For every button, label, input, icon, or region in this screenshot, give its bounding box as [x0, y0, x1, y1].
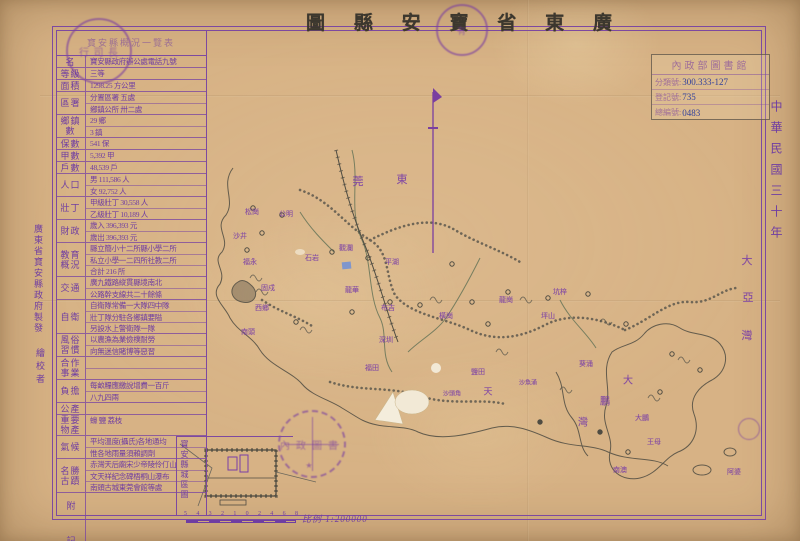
scalebar-numbers: 5432102468	[184, 511, 298, 517]
table-row-value: 三等	[86, 68, 206, 79]
map-label: 坪山	[541, 311, 555, 321]
inset-city-box	[176, 436, 293, 516]
library-card-title: 內政部圖書館	[652, 55, 769, 75]
map-label: 平湖	[385, 257, 399, 267]
table-row-line: 蠔 鹽 荔枝	[86, 415, 206, 426]
card-row-label: 分類號:	[655, 77, 681, 88]
table-row-line: 女 92,752 人	[86, 185, 206, 196]
table-row: 面積1298.25 方公里	[56, 80, 206, 92]
map-label: 坑梓	[553, 287, 567, 297]
map-label: 觀瀾	[339, 243, 353, 253]
stamp-text: 有	[457, 24, 467, 37]
table-row-label: 公產	[56, 403, 86, 414]
table-row-line: 甲級壯丁 30,558 人	[86, 197, 206, 208]
table-row-label: 人口	[56, 174, 86, 196]
map-label: 福永	[243, 257, 257, 267]
table-row-line: 男 111,586 人	[86, 174, 206, 185]
table-row-line: 3 鎮	[86, 126, 206, 137]
table-row-line	[86, 357, 206, 368]
table-row: 交通廣九鐵路縱貫縣境南北公路幹支線共二十餘條	[56, 277, 206, 300]
scalebar-number: 1	[233, 511, 236, 517]
table-row-line: 歲出 396,393 元	[86, 231, 206, 242]
table-row-label: 財政	[56, 220, 86, 242]
table-row-value: 蠔 鹽 荔枝	[86, 415, 206, 435]
scalebar-number: 6	[283, 511, 286, 517]
table-row-value: 廣九鐵路縱貫縣境南北公路幹支線共二十餘條	[86, 277, 206, 299]
card-row-value: 735	[682, 92, 696, 102]
table-row-label: 區署	[56, 92, 86, 114]
table-row: 戶數48,539 戶	[56, 162, 206, 174]
table-row-value: 5,392 甲	[86, 150, 206, 161]
table-header: 寶安縣概況一覽表	[56, 30, 206, 56]
map-label: 橫崗	[439, 311, 453, 321]
map-label: 深圳	[379, 335, 393, 345]
table-row-line: 29 鄉	[86, 115, 206, 126]
title-char: 安	[402, 8, 421, 35]
table-row-label: 面積	[56, 80, 86, 91]
library-card-row: 總編號: 0483	[652, 105, 769, 120]
map-label: 龍華	[345, 285, 359, 295]
table-row-line: 向無迷信賭博等惡習	[86, 345, 206, 356]
table-row-line: 541 保	[86, 138, 206, 149]
star-icon: ★	[305, 461, 318, 470]
table-row: 壯丁甲級壯丁 30,558 人乙級壯丁 10,189 人	[56, 197, 206, 220]
table-row-label: 教育概況	[56, 243, 86, 276]
title-char: 縣	[354, 8, 373, 35]
map-label: 天	[483, 385, 492, 398]
map-label: 沙井	[233, 231, 247, 241]
table-row-line: 合計 216 所	[86, 265, 206, 276]
margin-date-text: 中華民國三十年	[768, 100, 785, 247]
table-row-label: 名勝古蹟	[56, 459, 86, 492]
table-row-value	[86, 403, 206, 414]
table-row-label: 戶數	[56, 162, 86, 173]
table-row-value: 自衛隊常備一大隊四中隊壯丁隊分駐各鄉鎮要隘另設水上警衛隊一隊	[86, 300, 206, 333]
table-row-value: 分置區署 五處鄉鎮公所 卅二處	[86, 92, 206, 114]
table-row-label: 重要物產	[56, 415, 86, 435]
table-row-line: 公路幹支線共二十餘條	[86, 288, 206, 299]
table-row: 等級三等	[56, 68, 206, 80]
table-row-line	[86, 368, 206, 379]
table-row-label: 風俗習慣	[56, 334, 86, 356]
table-row-value: 1298.25 方公里	[86, 80, 206, 91]
table-row: 自衛自衛隊常備一大隊四中隊壯丁隊分駐各鄉鎮要隘另設水上警衛隊一隊	[56, 300, 206, 334]
scalebar-number: 2	[221, 511, 224, 517]
map-label: 阿婆	[727, 467, 741, 477]
map-label: 鵬	[600, 393, 610, 408]
table-row-line: 48,539 戶	[86, 162, 206, 173]
map-label: 王母	[647, 437, 661, 447]
map-label: 葵涌	[579, 359, 593, 369]
title-char: 廣	[593, 8, 612, 35]
scalebar-number: 0	[246, 511, 249, 517]
table-row: 財政歲入 396,393 元歲出 396,393 元	[56, 220, 206, 243]
table-row-value: 以農漁為業儉樸耐勞向無迷信賭博等惡習	[86, 334, 206, 356]
map-label: 大	[742, 252, 753, 268]
library-card: 內政部圖書館 分類號: 300.333-127 登記號: 735 總編號: 04…	[651, 54, 770, 120]
map-label: 大鵬	[635, 413, 649, 423]
table-row-value: 男 111,586 人女 92,752 人	[86, 174, 206, 196]
map-label: 福田	[365, 363, 379, 373]
table-row: 鄉鎮數29 鄉3 鎮	[56, 115, 206, 138]
map-label: 南澳	[613, 465, 627, 475]
table-row-line: 八九四兩	[86, 391, 206, 402]
table-row-line: 三等	[86, 68, 206, 79]
scalebar-number: 3	[209, 511, 212, 517]
table-row: 負擔每畝糧應繳說增費一百斤八九四兩	[56, 380, 206, 403]
map-label: 沙魚涌	[519, 378, 537, 387]
table-row-label: 甲數	[56, 150, 86, 161]
library-card-row: 登記號: 735	[652, 90, 769, 105]
scalebar-number: 5	[184, 511, 187, 517]
map-label: 公明	[279, 209, 293, 219]
map-label: 松崗	[245, 207, 259, 217]
table-row-value: 48,539 戶	[86, 162, 206, 173]
table-row: 甲數5,392 甲	[56, 150, 206, 162]
map-label: 布吉	[381, 303, 395, 313]
card-row-label: 登記號:	[655, 92, 681, 103]
table-row-label: 名	[56, 56, 86, 67]
table-row: 保數541 保	[56, 138, 206, 150]
margin-drafter-text: 繪校者	[34, 348, 47, 387]
table-row-line: 縣立簡小十二所縣小學二所	[86, 243, 206, 254]
scalebar-number: 2	[258, 511, 261, 517]
table-row: 人口男 111,586 人女 92,752 人	[56, 174, 206, 197]
table-row-line: 鄉鎮公所 卅二處	[86, 103, 206, 114]
library-card-row: 分類號: 300.333-127	[652, 75, 769, 90]
table-row: 教育概況縣立簡小十二所縣小學二所私立小學一二四所社教二所合計 216 所	[56, 243, 206, 277]
table-row-label: 負擔	[56, 380, 86, 402]
table-row-value: 每畝糧應繳說增費一百斤八九四兩	[86, 380, 206, 402]
scalebar-number: 4	[196, 511, 199, 517]
table-row-label: 附記	[56, 493, 86, 541]
title-char: 圖	[306, 8, 325, 35]
map-label: 大	[623, 372, 633, 387]
table-row-value: 寶安縣政府辦公處電話九號	[86, 56, 206, 67]
map-label: 沙頭角	[443, 389, 461, 398]
table-row-line: 分置區署 五處	[86, 92, 206, 103]
table-row-label: 氣候	[56, 436, 86, 458]
table-row-line: 乙級壯丁 10,189 人	[86, 208, 206, 219]
map-label: 亞	[743, 289, 754, 305]
table-row-value: 縣立簡小十二所縣小學二所私立小學一二四所社教二所合計 216 所	[86, 243, 206, 276]
table-row-line: 私立小學一二四所社教二所	[86, 254, 206, 265]
table-row-value: 歲入 396,393 元歲出 396,393 元	[86, 220, 206, 242]
map-label: 西鄉	[255, 303, 269, 313]
map-label: 石岩	[305, 253, 319, 263]
table-row: 名寶安縣政府辦公處電話九號	[56, 56, 206, 68]
table-row-line: 壯丁隊分駐各鄉鎮要隘	[86, 311, 206, 322]
map-label: 莞	[353, 173, 364, 189]
table-row-value: 541 保	[86, 138, 206, 149]
table-row-label: 交通	[56, 277, 86, 299]
table-row: 風俗習慣以農漁為業儉樸耐勞向無迷信賭博等惡習	[56, 334, 206, 357]
table-row-line: 以農漁為業儉樸耐勞	[86, 334, 206, 345]
map-label: 固戍	[261, 283, 275, 293]
round-stamp-small-right	[738, 418, 760, 440]
map-label: 東	[397, 171, 408, 187]
table-row-value: 29 鄉3 鎮	[86, 115, 206, 137]
scalebar	[186, 520, 296, 523]
table-row: 公產	[56, 403, 206, 415]
table-row-line: 5,392 甲	[86, 150, 206, 161]
table-row: 重要物產蠔 鹽 荔枝	[56, 415, 206, 436]
table-row-label: 合作事業	[56, 357, 86, 379]
table-row-line	[86, 403, 206, 414]
round-stamp-title: 有	[436, 4, 488, 56]
title-char: 東	[545, 8, 564, 35]
table-row-value: 甲級壯丁 30,558 人乙級壯丁 10,189 人	[86, 197, 206, 219]
table-row-line: 每畝糧應繳說增費一百斤	[86, 380, 206, 391]
map-label: 灣	[578, 414, 588, 429]
table-row-label: 等級	[56, 68, 86, 79]
scale-ratio-text: 比例 1:200000	[302, 512, 368, 525]
card-row-value: 300.333-127	[682, 77, 728, 87]
card-row-value: 0483	[682, 108, 700, 118]
table-row-label: 壯丁	[56, 197, 86, 219]
table-row-line: 歲入 396,393 元	[86, 220, 206, 231]
map-label: 龍崗	[499, 295, 513, 305]
scalebar-number: 8	[295, 511, 298, 517]
table-row-line: 1298.25 方公里	[86, 80, 206, 91]
scalebar-number: 4	[270, 511, 273, 517]
table-row: 合作事業	[56, 357, 206, 380]
map-label: 灣	[742, 327, 753, 343]
table-row-label: 自衛	[56, 300, 86, 333]
margin-publisher-text: 廣東省寶安縣政府製發	[32, 224, 45, 334]
map-label: 南頭	[241, 327, 255, 337]
table-row-value	[86, 357, 206, 379]
table-row-label: 鄉鎮數	[56, 115, 86, 137]
card-row-label: 總編號:	[655, 107, 681, 118]
table-row-line: 另設水上警衛隊一隊	[86, 322, 206, 333]
title-char: 省	[497, 8, 516, 35]
table-row-line: 自衛隊常備一大隊四中隊	[86, 300, 206, 311]
map-label: 鹽田	[471, 367, 485, 377]
table-row: 區署分置區署 五處鄉鎮公所 卅二處	[56, 92, 206, 115]
table-row-line: 廣九鐵路縱貫縣境南北	[86, 277, 206, 288]
table-row-label: 保數	[56, 138, 86, 149]
table-row-line: 寶安縣政府辦公處電話九號	[86, 56, 206, 67]
